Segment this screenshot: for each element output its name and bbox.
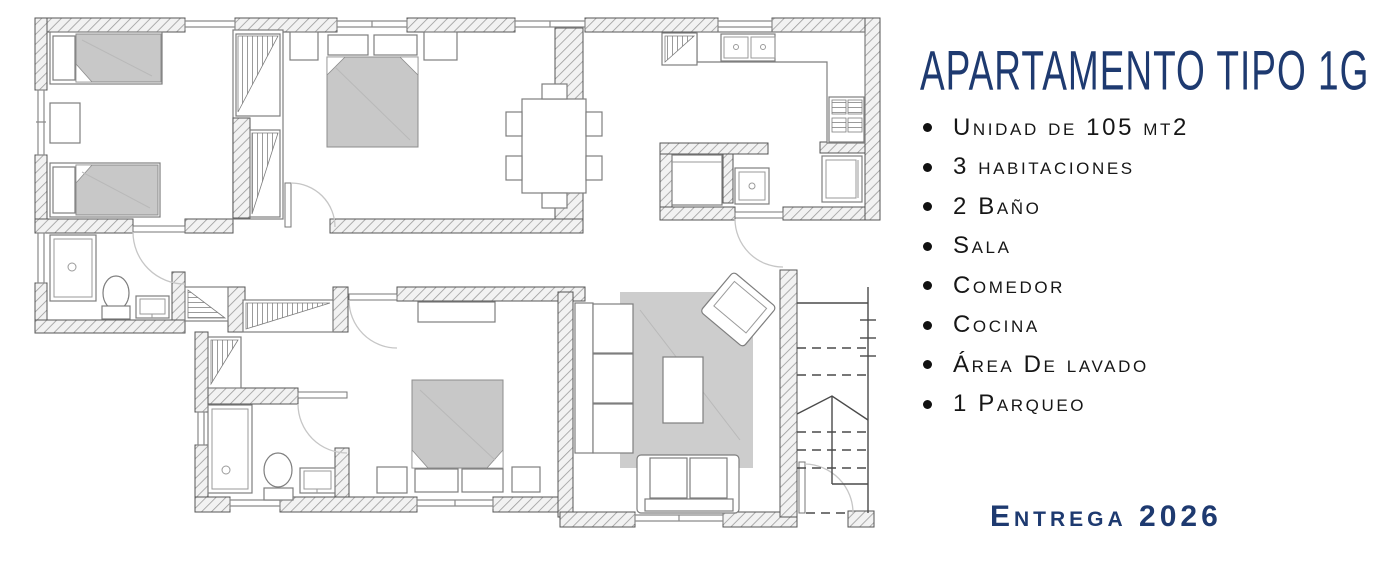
floorplan [0,0,905,566]
list-item: Área De lavado [923,345,1189,385]
flyer: Apartamento Tipo 1G Unidad de 105 mt2 3 … [0,0,1387,566]
bath-sink-icon [300,468,335,493]
feature-text: 1 Parqueo [953,390,1086,418]
list-item: 3 habitaciones [923,148,1189,188]
nightstand [377,467,407,493]
list-item: Comedor [923,266,1189,306]
shower-icon [208,405,252,493]
bullet-icon [923,242,932,251]
bullet-icon [923,400,932,409]
laundry-sink-icon [735,168,769,204]
list-item: Unidad de 105 mt2 [923,108,1189,148]
bullet-icon [923,202,932,211]
nightstand [50,103,80,143]
bullet-icon [923,281,932,290]
fridge-icon [672,155,722,205]
nightstand [512,467,540,492]
kitchen [662,32,865,143]
feature-text: Unidad de 105 mt2 [953,114,1189,142]
list-item: 1 Parqueo [923,385,1189,425]
bath-sink-icon [136,296,169,318]
sink-icon [721,34,775,61]
toilet-icon [102,276,130,319]
living-room [575,272,776,513]
shower-icon [50,235,96,301]
list-item: Cocina [923,306,1189,346]
nightstand [290,32,318,60]
feature-text: 3 habitaciones [953,153,1135,181]
feature-text: Área De lavado [953,351,1149,379]
feature-text: 2 Baño [953,193,1041,221]
bathroom-1 [50,235,169,319]
bullet-icon [923,360,932,369]
list-item: Sala [923,227,1189,267]
toilet-icon [264,453,293,500]
list-item: 2 Baño [923,187,1189,227]
bedroom-3 [377,302,540,493]
feature-text: Comedor [953,272,1065,300]
bullet-icon [923,163,932,172]
stove-icon [829,97,864,142]
feature-text: Sala [953,232,1012,260]
bullet-icon [923,123,932,132]
page-title: Apartamento Tipo 1G [920,40,1369,103]
dresser [418,302,495,322]
info-panel: Apartamento Tipo 1G Unidad de 105 mt2 3 … [915,0,1385,566]
feature-text: Cocina [953,311,1040,339]
bullet-icon [923,321,932,330]
washer-icon [822,156,862,202]
dining-table [506,84,602,208]
feature-list: Unidad de 105 mt2 3 habitaciones 2 Baño … [923,108,1189,424]
staircase [797,287,876,513]
nightstand [424,32,457,60]
loveseat-icon [637,455,739,513]
delivery-label: Entrega 2026 [990,500,1222,534]
coffee-table [663,357,703,423]
sofa-icon [575,303,633,453]
laundry-area [672,155,862,205]
bathroom-2 [208,405,335,500]
bedroom-2 [290,32,457,147]
